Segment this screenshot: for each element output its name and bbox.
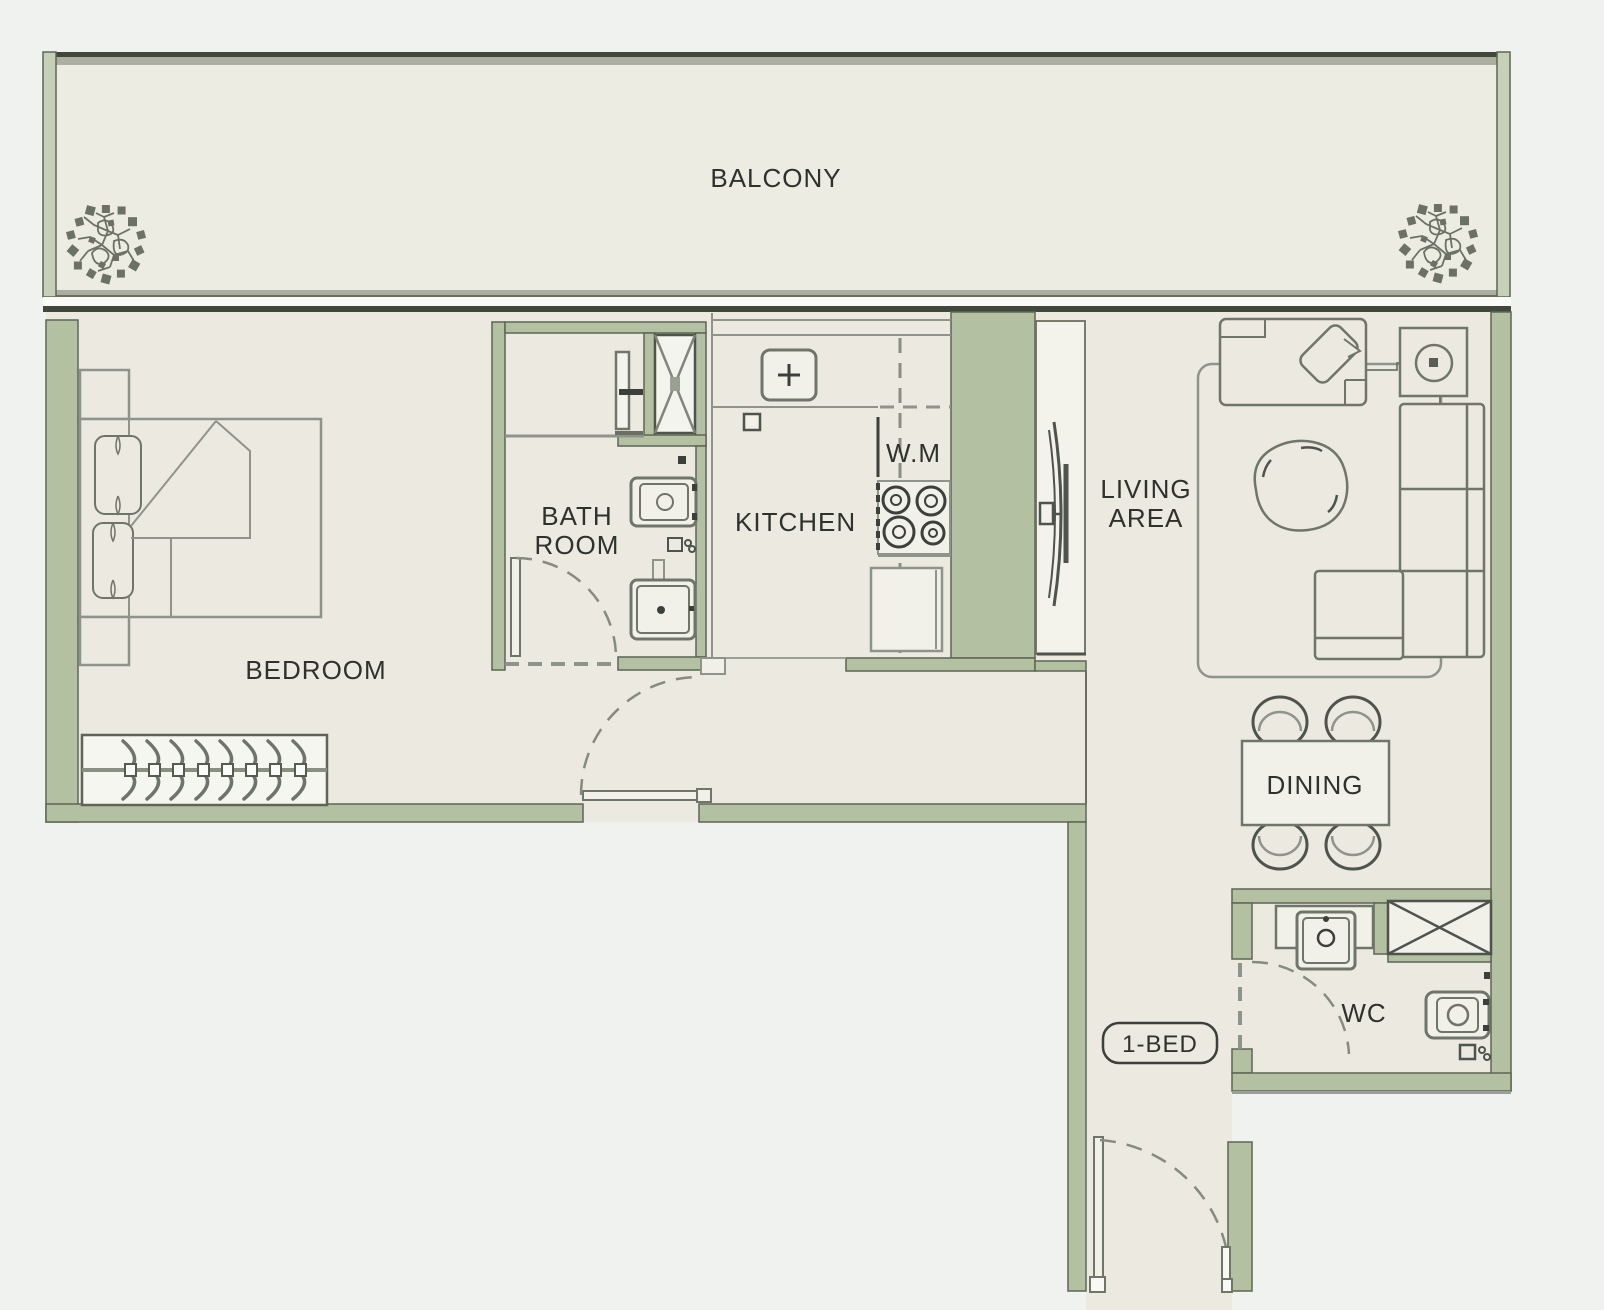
svg-text:BATH: BATH <box>541 501 612 531</box>
svg-text:LIVING: LIVING <box>1100 474 1191 504</box>
svg-text:1-BED: 1-BED <box>1122 1031 1198 1058</box>
svg-text:WC: WC <box>1341 998 1386 1028</box>
svg-text:BALCONY: BALCONY <box>710 163 841 193</box>
svg-text:KITCHEN: KITCHEN <box>735 507 856 537</box>
svg-text:W.M: W.M <box>886 438 941 468</box>
svg-text:ROOM: ROOM <box>535 530 620 560</box>
svg-text:DINING: DINING <box>1267 770 1364 800</box>
svg-text:BEDROOM: BEDROOM <box>245 655 386 685</box>
svg-text:AREA: AREA <box>1109 503 1184 533</box>
